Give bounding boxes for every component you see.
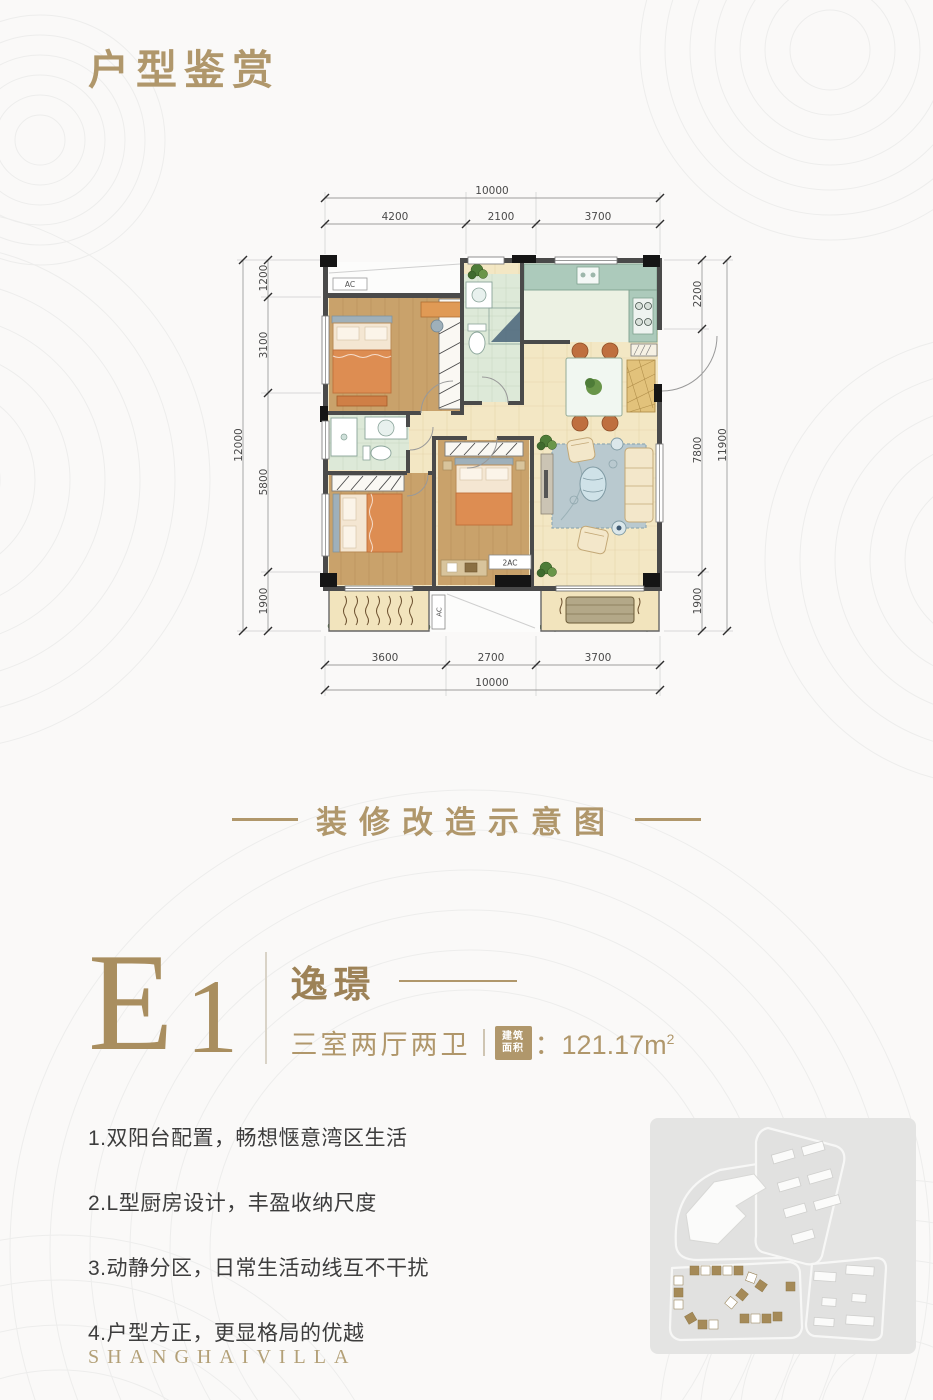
armchair-icon	[577, 525, 609, 554]
area-value: ：121.17m2	[535, 1023, 675, 1062]
section-title-dash-right	[635, 818, 701, 821]
dim-left-seg-2: 3100	[258, 332, 270, 359]
unit-code: E 1	[88, 946, 239, 1061]
desk-3	[441, 560, 487, 576]
side-table-icon	[611, 438, 623, 450]
dim-top-seg-3: 3700	[585, 211, 612, 223]
section-title: 装修改造示意图	[0, 797, 933, 842]
wardrobe-3	[445, 442, 523, 456]
dim-bottom-seg-3: 3700	[585, 652, 612, 664]
ac-label-2ac: 2AC	[502, 559, 517, 568]
dining-chair-icon	[602, 343, 618, 359]
floor-plan: 10000 4200 2100 3700 3600 2700 3700 1000…	[225, 178, 770, 733]
entry-door-arc	[662, 336, 717, 391]
area-badge-line2: 面积	[502, 1043, 524, 1055]
dim-top-seg-2: 2100	[488, 211, 515, 223]
section-title-dash-left	[232, 818, 298, 821]
unit-code-letter: E	[88, 946, 174, 1061]
bed-2	[333, 494, 402, 552]
dim-left-seg-4: 1900	[258, 588, 270, 615]
bed-master	[332, 316, 392, 406]
daybed-icon	[566, 597, 634, 623]
unit-name-row: 逸璟	[291, 954, 675, 1008]
dim-top-total: 10000	[475, 185, 508, 197]
area-badge-line1: 建筑	[502, 1031, 524, 1043]
unit-layout: 三室两厅两卫	[291, 1023, 471, 1062]
section-title-text: 装修改造示意图	[316, 797, 617, 842]
brand-text: SHANGHAIVILLA	[88, 1346, 356, 1369]
wardrobe-2	[332, 475, 404, 491]
dim-bottom-seg-2: 2700	[478, 652, 505, 664]
exterior-void-bottom: AC	[431, 590, 540, 632]
armchair-icon	[566, 437, 595, 463]
feature-item-4: 4.户型方正，更显格局的优越	[88, 1317, 429, 1347]
unit-divider	[265, 952, 267, 1064]
dim-right-seg-1: 2200	[692, 281, 704, 308]
kitchen-sink-icon	[577, 267, 599, 284]
ac-label-top: AC	[345, 280, 355, 289]
dining-chair-icon	[572, 343, 588, 359]
entry-doormat	[627, 360, 655, 412]
unit-spec-row: 三室两厅两卫 建筑 面积 ：121.17m2	[291, 1023, 675, 1062]
dim-left-total: 12000	[233, 428, 245, 461]
content: 户型鉴赏	[0, 0, 933, 1400]
dining-chair-icon	[602, 415, 618, 431]
coffee-table-icon	[580, 467, 606, 501]
dim-right-seg-2: 7800	[692, 437, 704, 464]
exterior-void-top-left: AC	[327, 262, 462, 295]
ac-label-bottom: AC	[436, 607, 444, 617]
toilet-icon	[371, 446, 391, 460]
unit-name: 逸璟	[291, 954, 377, 1008]
feature-item-1: 1.双阳台配置，畅想惬意湾区生活	[88, 1122, 429, 1152]
area-badge: 建筑 面积	[495, 1026, 532, 1060]
ac-unit-2: 2AC	[489, 555, 531, 569]
dining-chair-icon	[572, 415, 588, 431]
unit-info: E 1 逸璟 三室两厅两卫 建筑 面积 ：121.17m2	[88, 946, 674, 1064]
page: 户型鉴赏	[0, 0, 933, 1400]
shoe-cabinet	[631, 344, 657, 356]
dim-bottom-total: 10000	[475, 677, 508, 689]
unit-code-number: 1	[186, 974, 239, 1061]
dim-right-total: 11900	[717, 428, 729, 461]
area-exponent: 2	[667, 1031, 675, 1047]
dim-bottom-seg-1: 3600	[372, 652, 399, 664]
balcony-left	[329, 590, 429, 631]
sofa-icon	[625, 448, 653, 522]
unit-details: 逸璟 三室两厅两卫 建筑 面积 ：121.17m2	[291, 946, 675, 1062]
balcony-right	[541, 590, 659, 631]
feature-list: 1.双阳台配置，畅想惬意湾区生活 2.L型厨房设计，丰盈收纳尺度 3.动静分区，…	[88, 1122, 429, 1382]
dim-left-seg-3: 5800	[258, 469, 270, 496]
dim-left-seg-1: 1200	[258, 265, 270, 292]
site-map	[650, 1118, 916, 1354]
toilet-icon	[469, 332, 485, 354]
spec-separator	[483, 1029, 485, 1056]
unit-name-line	[399, 980, 517, 982]
feature-item-3: 3.动静分区，日常生活动线互不干扰	[88, 1252, 429, 1282]
page-title: 户型鉴赏	[88, 36, 280, 96]
dim-top-seg-1: 4200	[382, 211, 409, 223]
dim-right-seg-3: 1900	[692, 588, 704, 615]
feature-item-2: 2.L型厨房设计，丰盈收纳尺度	[88, 1187, 429, 1217]
